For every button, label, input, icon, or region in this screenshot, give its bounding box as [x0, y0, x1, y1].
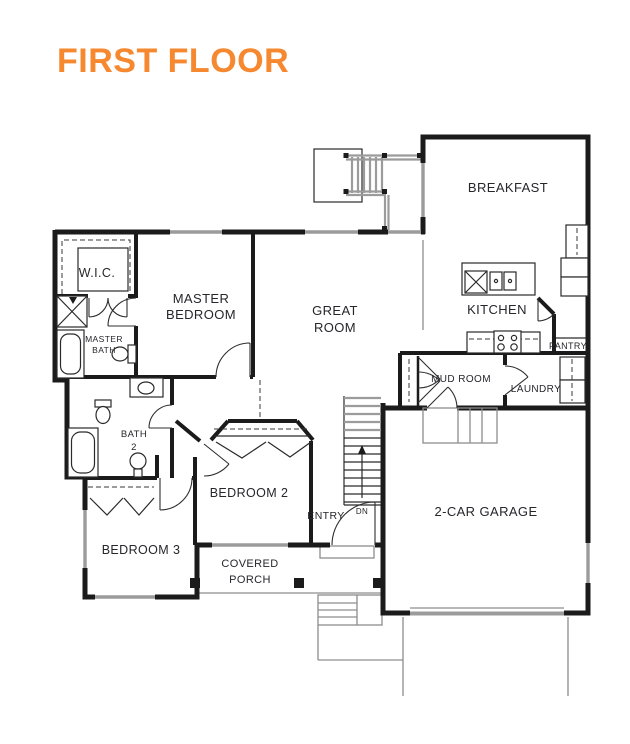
refrigerator [561, 225, 588, 296]
label-wic: W.I.C. [79, 266, 115, 280]
label-bath2: 2 [131, 442, 137, 453]
range-counter [467, 331, 540, 353]
label-kitchen: KITCHEN [467, 302, 527, 317]
garage-steps [423, 408, 497, 443]
deck [314, 149, 422, 231]
label-mud-room: MUD ROOM [431, 374, 491, 385]
bath-fixtures [57, 296, 163, 477]
bath2-toilet [95, 400, 111, 424]
bedroom2-door [204, 444, 229, 476]
bath2-vanity [130, 378, 163, 397]
label-laundry: LAUNDRY [511, 384, 561, 395]
floor-plan-page: FIRST FLOOR [0, 0, 630, 744]
label-covered-porch: COVERED [221, 558, 278, 570]
bedroom3-door [160, 478, 192, 510]
label-great-room: ROOM [314, 320, 356, 335]
label-entry: ENTRY [307, 510, 344, 522]
page-title: FIRST FLOOR [57, 42, 289, 80]
label-master-bedroom: MASTER [173, 291, 230, 306]
bath2-sink [130, 453, 146, 477]
range [494, 331, 521, 353]
floor-plan-canvas: FIRST FLOOR [0, 0, 630, 744]
label-master-bath: BATH [92, 345, 116, 355]
bath2-tub [68, 428, 98, 477]
kitchen-fixtures [462, 225, 588, 353]
label-great-room: GREAT [312, 303, 358, 318]
wic-double-doors [89, 298, 127, 317]
label-master-bedroom: BEDROOM [166, 307, 236, 322]
master-bedroom-door [216, 343, 250, 377]
main-stairs [344, 396, 381, 505]
label-breakfast: BREAKFAST [468, 180, 548, 195]
label-bedroom2: BEDROOM 2 [210, 486, 289, 500]
master-tub [57, 330, 84, 378]
label-pantry: PANTRY [549, 341, 587, 351]
porch-posts [190, 578, 383, 588]
master-shower [57, 296, 87, 327]
label-garage: 2-CAR GARAGE [434, 504, 537, 519]
bath2-door [149, 405, 172, 428]
label-bedroom3: BEDROOM 3 [102, 543, 181, 557]
deck-stairs [344, 153, 423, 231]
label-bath2: BATH [121, 429, 147, 440]
bedroom2-closet-bifold [216, 442, 311, 458]
label-stairs-dn: DN [356, 507, 368, 516]
front-entry-door [332, 502, 375, 545]
master-bath-door [108, 298, 136, 326]
label-covered-porch: PORCH [229, 574, 271, 586]
washer-dryer [560, 357, 585, 403]
label-master-bath: MASTER [85, 334, 123, 344]
kitchen-island [462, 263, 535, 295]
bedroom3-closet-bifold [90, 498, 154, 515]
